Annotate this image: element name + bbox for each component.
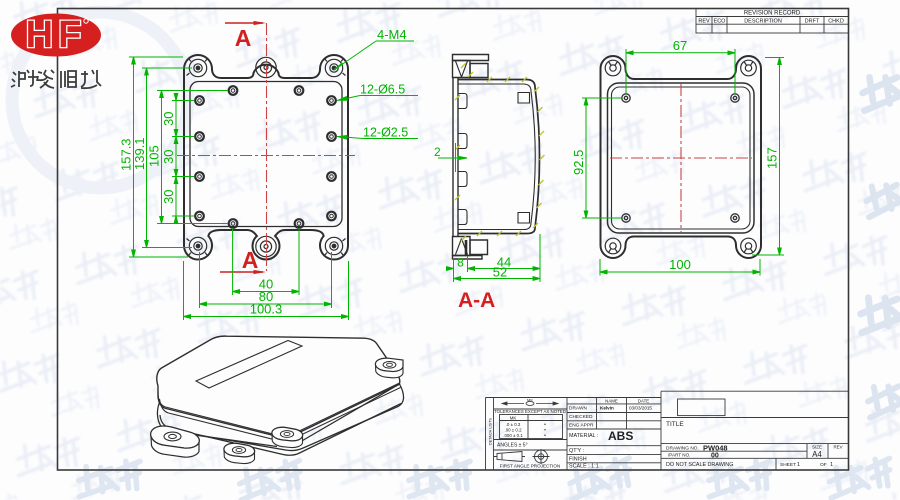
svg-text:DO NOT SCALE DRAWING: DO NOT SCALE DRAWING xyxy=(666,462,733,468)
svg-text:SCALE : 1:1: SCALE : 1:1 xyxy=(569,464,599,470)
svg-text:REV: REV xyxy=(833,445,842,450)
svg-text:105: 105 xyxy=(147,145,162,167)
svg-text:100: 100 xyxy=(669,257,691,272)
svg-text:CHECKED: CHECKED xyxy=(569,414,593,420)
svg-text:100.3: 100.3 xyxy=(250,302,283,317)
svg-text:NAME: NAME xyxy=(605,398,618,403)
svg-text:1: 1 xyxy=(830,462,833,468)
svg-text:157: 157 xyxy=(765,147,780,169)
svg-text:•: • xyxy=(544,433,546,439)
svg-text:DRAWN: DRAWN xyxy=(569,406,587,412)
svg-text:MK: MK xyxy=(510,415,517,420)
svg-text:PW048: PW048 xyxy=(703,444,728,453)
svg-text:30: 30 xyxy=(161,150,176,164)
svg-text:DETACH LISTS: DETACH LISTS xyxy=(489,418,493,445)
svg-text:2: 2 xyxy=(434,145,441,159)
svg-text:MATERIAL :: MATERIAL : xyxy=(569,433,598,439)
svg-text:52: 52 xyxy=(493,265,507,280)
svg-text:A4: A4 xyxy=(812,450,822,459)
svg-text:.000 ± 0.1: .000 ± 0.1 xyxy=(503,433,523,438)
svg-text:8: 8 xyxy=(457,256,464,270)
svg-text:FIRST ANGLE PROJECTION: FIRST ANGLE PROJECTION xyxy=(500,464,561,469)
svg-text:12-Ø6.5: 12-Ø6.5 xyxy=(360,83,405,97)
svg-text:TOLERANCES EXCEPT AS NOTED: TOLERANCES EXCEPT AS NOTED xyxy=(494,409,566,414)
svg-text:ABS: ABS xyxy=(608,429,633,443)
svg-text:12-Ø2.5: 12-Ø2.5 xyxy=(363,126,408,140)
svg-text:A: A xyxy=(242,247,259,273)
svg-text:A: A xyxy=(235,25,252,51)
svg-text:DESCRIPTION: DESCRIPTION xyxy=(744,19,782,25)
svg-text:HF: HF xyxy=(26,14,87,56)
svg-text:.0 ± 0.3: .0 ± 0.3 xyxy=(506,422,521,427)
svg-text:ECO: ECO xyxy=(714,19,727,25)
svg-text:DRAWING NO.: DRAWING NO. xyxy=(666,446,699,452)
svg-text:REV: REV xyxy=(698,19,710,25)
svg-text:DRFT: DRFT xyxy=(805,19,820,25)
svg-text:A-A: A-A xyxy=(458,289,495,312)
svg-text:DATE: DATE xyxy=(638,398,649,403)
svg-text:30: 30 xyxy=(161,112,176,126)
svg-text:Kelvin: Kelvin xyxy=(600,405,614,410)
svg-text:OF: OF xyxy=(820,462,827,468)
svg-text:4-M4: 4-M4 xyxy=(377,27,407,42)
svg-text:FINISH: FINISH xyxy=(569,457,587,463)
svg-text:SHEET: SHEET xyxy=(780,462,796,468)
svg-text:00: 00 xyxy=(711,453,719,460)
svg-text:92.5: 92.5 xyxy=(571,150,586,175)
svg-text:ANGLES ± 5°: ANGLES ± 5° xyxy=(497,443,528,449)
svg-text:SIZE: SIZE xyxy=(812,445,822,450)
svg-text:1: 1 xyxy=(797,462,800,468)
svg-text:TITLE: TITLE xyxy=(666,421,684,428)
svg-text:.00 ± 0.2: .00 ± 0.2 xyxy=(504,428,522,433)
svg-text:67: 67 xyxy=(673,38,687,53)
svg-text:ENG APPR: ENG APPR xyxy=(569,423,594,429)
svg-text:03/03/2015: 03/03/2015 xyxy=(629,405,652,410)
svg-text:30: 30 xyxy=(161,190,176,204)
svg-text:CHKD: CHKD xyxy=(828,19,844,25)
svg-text:MK: MK xyxy=(527,398,533,403)
svg-text:REVISION RECORD: REVISION RECORD xyxy=(744,11,801,17)
svg-text:/PART NO.: /PART NO. xyxy=(668,453,690,458)
svg-text:139.1: 139.1 xyxy=(132,137,147,170)
svg-text:QT'Y :: QT'Y : xyxy=(569,448,584,454)
